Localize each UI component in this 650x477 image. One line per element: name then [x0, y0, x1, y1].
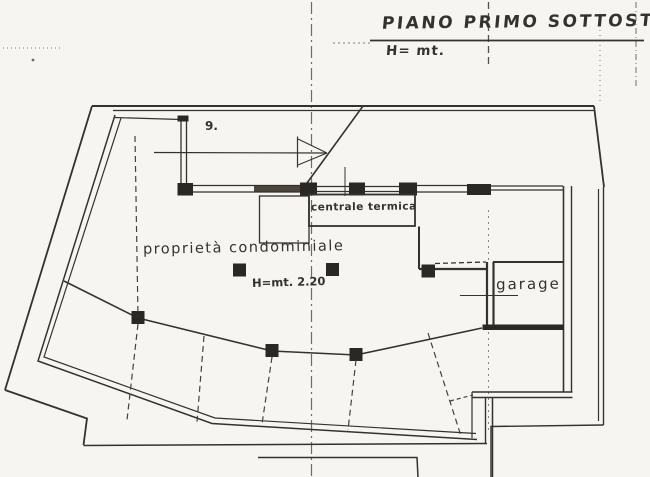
common-area-label: proprietà condominiale — [143, 239, 345, 257]
boiler-room-label: centrale termica — [311, 202, 415, 213]
ceiling-height-label: H=mt. 2.20 — [252, 276, 326, 289]
retaining-wall — [64, 281, 482, 355]
scale-note: H= mt. — [386, 45, 446, 59]
garage-label: garage — [496, 277, 561, 293]
hatched-wall — [178, 116, 564, 196]
room-number-label: 9. — [205, 120, 218, 132]
scanned-floor-plan-page: PIANO PRIMO SOTTOSTRADA H= mt. 9. centra… — [0, 0, 650, 477]
drawing-title: PIANO PRIMO SOTTOSTRADA — [381, 12, 650, 33]
